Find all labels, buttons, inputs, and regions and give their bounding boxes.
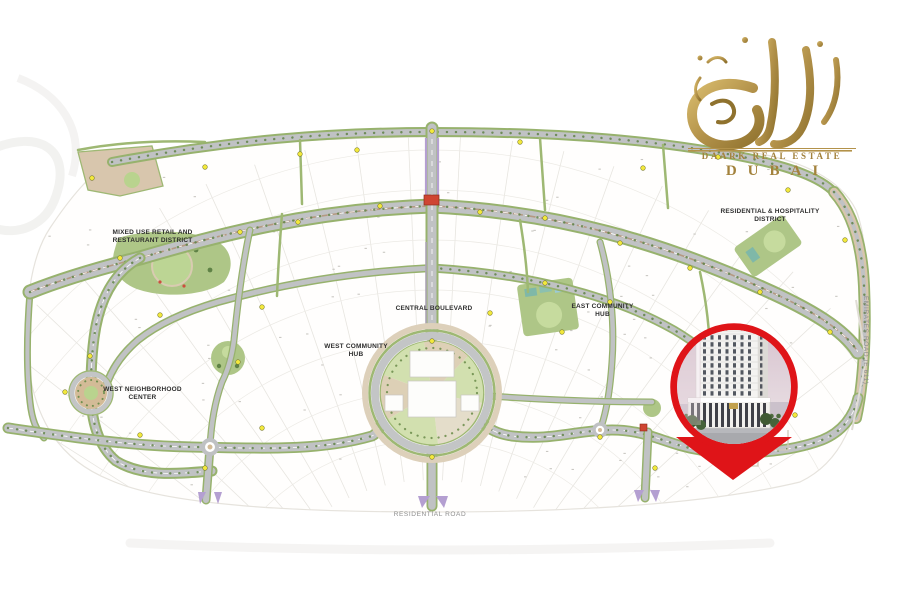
label-west-neighborhood-center: WEST NEIGHBORHOOD CENTER (85, 386, 200, 403)
label-emirates-road: EMIRATES ROAD (E 611) (862, 296, 869, 385)
masterplan-canvas: MIXED USE RETAIL AND RESTAURANT DISTRICT… (0, 0, 900, 600)
brand-name: DAARK REAL ESTATE (688, 148, 856, 161)
label-mixed-use-district: MIXED USE RETAIL AND RESTAURANT DISTRICT (70, 229, 235, 246)
brand-logo-calligraphy-icon (688, 37, 852, 152)
masterplan-map (0, 0, 900, 600)
label-east-community-hub: EAST COMMUNITY HUB (545, 303, 660, 320)
label-west-community-hub: WEST COMMUNITY HUB (300, 343, 412, 360)
label-residential-road: RESIDENTIAL ROAD (365, 511, 495, 518)
label-residential-hospitality-district: RESIDENTIAL & HOSPITALITY DISTRICT (700, 208, 840, 225)
label-central-boulevard: CENTRAL BOULEVARD (369, 305, 499, 313)
brand-city: DUBAI (688, 163, 856, 180)
